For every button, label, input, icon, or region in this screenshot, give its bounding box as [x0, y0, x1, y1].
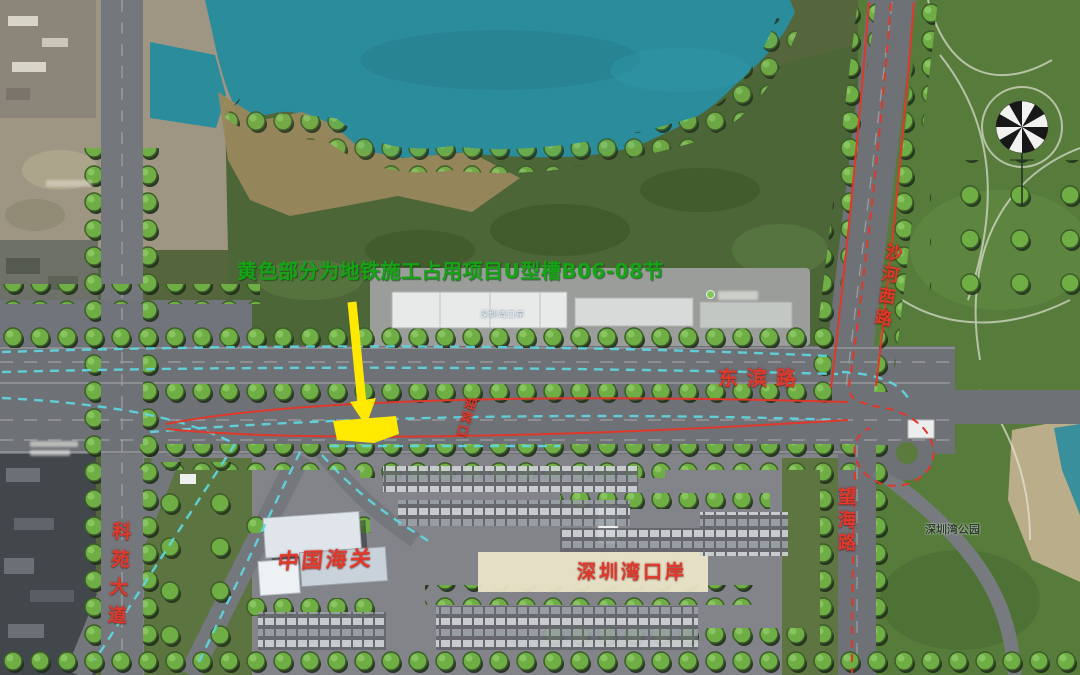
city-poi-smudge-line1: [30, 441, 78, 447]
construction-poi-smudge: [46, 180, 92, 187]
map-base-layer: [0, 0, 1080, 675]
satellite-map-image: 黄色部分为地铁施工占用项目U型槽B06-08节 东滨路 沙河西路 望海路 科苑大…: [0, 0, 1080, 675]
park-poi-label-smudge: [718, 291, 758, 300]
park-poi-icon: [706, 290, 715, 299]
city-poi-smudge-line2: [30, 450, 70, 456]
